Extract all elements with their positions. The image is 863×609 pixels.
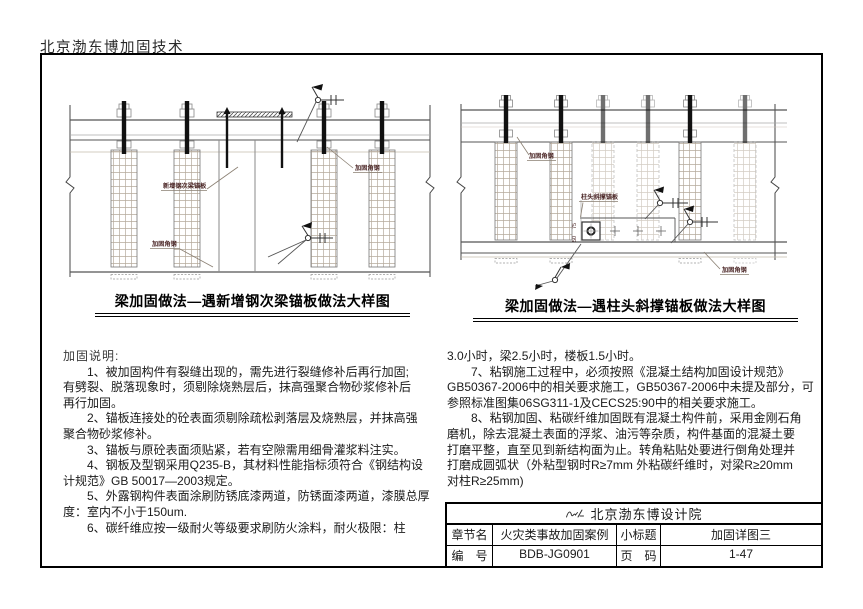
titleblock-header: 北京渤东博设计院 bbox=[447, 504, 821, 525]
tb-value-number: BDB-JG0901 bbox=[493, 546, 617, 566]
note-line: 打磨成圆弧状（外粘型钢时R≥7mm 外粘碳纤维时，对梁R≥20mm bbox=[447, 458, 821, 474]
titleblock: 北京渤东博设计院 章节名 火灾类事故加固案例 小标题 加固详图三 编 号 BDB… bbox=[445, 502, 823, 568]
note-line: 磨机，除去混凝土表面的浮浆、油污等杂质，构件基面的混凝土要 bbox=[447, 427, 821, 443]
tb-label-subtitle: 小标题 bbox=[617, 525, 661, 545]
note-line: 2、锚板连接处的砼表面须剔除疏松剥落层及烧熟层，并抹高强 bbox=[63, 411, 443, 427]
label-angle-steel: 加固角钢 bbox=[721, 266, 747, 274]
new-steel-secondary-beam bbox=[217, 107, 292, 272]
notes-right-column: 3.0小时，梁2.5小时，楼板1.5小时。 7、粘钢施工过程中，必须按照《混凝土… bbox=[447, 349, 821, 489]
tb-label-chapter: 章节名 bbox=[447, 525, 493, 545]
right-drawing-caption: 梁加固做法—遇柱头斜撑锚板做法大样图 bbox=[473, 296, 798, 322]
anchor-plate-columns bbox=[111, 101, 395, 279]
note-line: 度：室内不小于150um. bbox=[63, 505, 443, 521]
tb-value-subtitle: 加固详图三 bbox=[661, 525, 821, 545]
label-new-steel-plate: 新增钢次梁锚板 bbox=[163, 182, 207, 190]
tb-label-page: 页 码 bbox=[617, 546, 661, 566]
weld-symbol-icon bbox=[535, 244, 581, 290]
note-line: 3.0小时，梁2.5小时，楼板1.5小时。 bbox=[447, 349, 821, 365]
break-line bbox=[426, 105, 434, 277]
break-line bbox=[457, 104, 465, 260]
note-line: 有劈裂、脱落现象时，须剔除烧熟层后，抹高强聚合物砂浆修补后 bbox=[63, 380, 443, 396]
note-line: 参照标准图集06SG311-1及CECS25:90中的相关要求施工。 bbox=[447, 396, 821, 412]
note-line: 再行加固。 bbox=[63, 396, 443, 412]
institute-logo-icon bbox=[565, 508, 585, 520]
note-line: 3、锚板与原砼表面须贴紧，若有空隙需用细骨灌浆料注实。 bbox=[63, 443, 443, 459]
tb-value-page: 1-47 bbox=[661, 546, 821, 566]
note-line: 7、粘钢施工过程中，必须按照《混凝土结构加固设计规范》 bbox=[447, 365, 821, 381]
break-line bbox=[66, 105, 74, 277]
note-line: 6、碳纤维应按一级耐火等级要求刷防火涂料，耐火极限：柱 bbox=[63, 521, 443, 537]
column-head-brace-plate: 75 50 bbox=[572, 200, 675, 242]
titleblock-row: 编 号 BDB-JG0901 页 码 1-47 bbox=[447, 546, 821, 566]
dim-label: 75 bbox=[572, 223, 578, 229]
tb-value-chapter: 火灾类事故加固案例 bbox=[493, 525, 617, 545]
note-line: 打磨平整，直至见到新结构面为止。转角粘贴处要进行倒角处理并 bbox=[447, 443, 821, 459]
label-brace-plate: 柱头斜撑锚板 bbox=[581, 193, 619, 201]
dim-label: 50 bbox=[572, 236, 578, 242]
institute-name: 北京渤东博设计院 bbox=[590, 504, 702, 523]
note-line: GB50367-2006中的相关要求施工，GB50367-2006中未提及部分，… bbox=[447, 380, 821, 396]
notes-left-column: 加固说明: 1、被加固构件有裂缝出现的，需先进行裂缝修补后再行加固; 有劈裂、脱… bbox=[63, 349, 443, 536]
left-drawing-caption: 梁加固做法—遇新增钢次梁锚板做法大样图 bbox=[95, 291, 410, 317]
note-line: 对柱R≥25mm) bbox=[447, 474, 821, 490]
tb-label-number: 编 号 bbox=[447, 546, 493, 566]
sheet-frame: 新增钢次梁锚板 加固角钢 加固角钢 bbox=[40, 53, 823, 568]
label-angle-steel: 加固角钢 bbox=[528, 152, 554, 160]
notes-heading: 加固说明: bbox=[63, 349, 443, 365]
note-line: 计规范》GB 50017—2003规定。 bbox=[63, 474, 443, 490]
note-line: 4、钢板及型钢采用Q235-B，其材料性能指标须符合《钢结构设 bbox=[63, 458, 443, 474]
left-detail-drawing: 新增钢次梁锚板 加固角钢 加固角钢 bbox=[65, 81, 440, 291]
label-angle-steel: 加固角钢 bbox=[354, 164, 380, 172]
titleblock-row: 章节名 火灾类事故加固案例 小标题 加固详图三 bbox=[447, 525, 821, 546]
note-line: 8、粘钢加固、粘碳纤维加固既有混凝土构件前，采用金刚石角 bbox=[447, 411, 821, 427]
label-angle-steel: 加固角钢 bbox=[151, 240, 177, 248]
sheet-canvas: 北京渤东博加固技术 bbox=[0, 0, 863, 609]
break-line bbox=[771, 104, 779, 260]
anchor-plate-columns bbox=[495, 95, 756, 263]
note-line: 聚合物砂浆修补。 bbox=[63, 427, 443, 443]
note-line: 1、被加固构件有裂缝出现的，需先进行裂缝修补后再行加固; bbox=[63, 365, 443, 381]
note-line: 5、外露钢构件表面涂刷防锈底漆两道，防锈面漆两道，漆膜总厚 bbox=[63, 489, 443, 505]
right-detail-drawing: 75 50 bbox=[455, 80, 805, 295]
